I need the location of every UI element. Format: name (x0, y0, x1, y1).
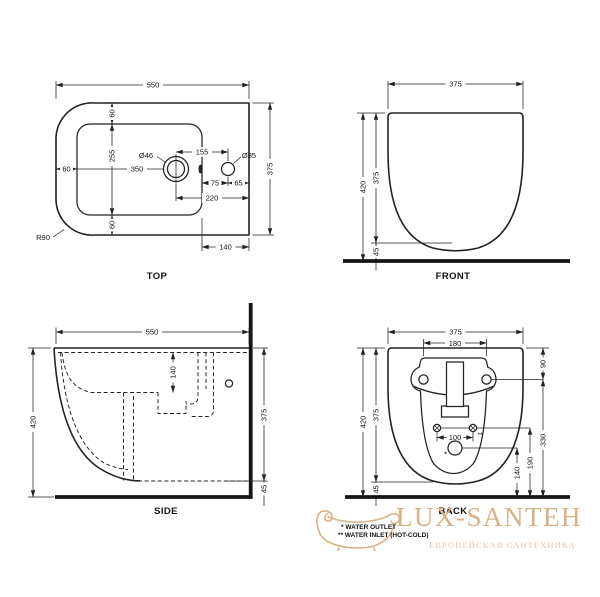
svg-text:375: 375 (449, 328, 462, 337)
svg-text:375: 375 (266, 163, 275, 176)
front-view-label: FRONT (436, 271, 471, 282)
faucet-hole-callout: Ø46 (139, 151, 165, 162)
svg-text:420: 420 (29, 416, 38, 429)
svg-text:45: 45 (372, 485, 381, 493)
svg-text:Ø46: Ø46 (139, 151, 153, 160)
svg-text:255: 255 (108, 150, 117, 163)
svg-text:375: 375 (449, 80, 462, 89)
front-view: 375 420 375 45 (343, 79, 570, 282)
legend-water-inlet: ** WATER INLET (HOT-COLD) (338, 532, 429, 540)
rim-slot (199, 165, 203, 174)
svg-text:45: 45 (372, 248, 381, 256)
svg-text:60: 60 (108, 221, 117, 229)
dim-top-rim-bottom: 60 (107, 215, 117, 235)
legend-water-outlet: * WATER OUTLET (341, 524, 429, 532)
svg-text:330: 330 (539, 434, 548, 447)
mounting-hole-left (419, 375, 428, 384)
side-hidden-interior (58, 353, 247, 481)
dim-top-rim-top: 60 (107, 103, 117, 124)
dim-front-width: 375 (388, 79, 523, 109)
watermark-tagline: ЕВРОПЕЙСКАЯ САНТЕХНИКА (429, 540, 576, 550)
dim-back-body-height: 375 (371, 348, 433, 482)
svg-text:140: 140 (169, 366, 178, 379)
side-view: 550 140 (28, 303, 269, 517)
svg-text:R90: R90 (36, 233, 50, 242)
corner-radius-callout: R90 (36, 230, 64, 243)
side-hole-callout: Ø35 (234, 151, 257, 164)
dim-top-overall-depth: 375 (253, 103, 275, 235)
dim-back-outlet-height: 140 (512, 448, 522, 497)
dim-side-depth: 550 (56, 327, 249, 344)
svg-text:375: 375 (372, 409, 381, 422)
back-view: 375 180 90 (345, 327, 570, 517)
svg-text:420: 420 (359, 416, 368, 429)
svg-text:Ø35: Ø35 (242, 151, 256, 160)
inlet-mark: ** (478, 432, 484, 439)
dim-top-faucet-center: 350 (127, 164, 147, 174)
svg-text:90: 90 (539, 360, 548, 368)
svg-text:180: 180 (449, 339, 462, 348)
svg-text:60: 60 (108, 109, 117, 117)
dim-back-top-to-mount: 90 (492, 348, 550, 380)
dim-side-total-height: 420 (28, 348, 54, 497)
dim-front-floor-gap: 45 (371, 243, 381, 271)
dim-top-side-hole-edge: 65 (228, 178, 249, 188)
top-view-label: TOP (147, 271, 168, 282)
dim-back-inlet-height: 190 (525, 428, 535, 497)
dim-side-basin-depth: 140 (168, 353, 178, 393)
dim-side-body-height: 375 (227, 348, 269, 481)
mounting-hole-right (482, 375, 491, 384)
back-drain-foot (442, 406, 469, 417)
top-view: 550 375 60 255 (36, 80, 275, 282)
svg-text:375: 375 (372, 172, 381, 185)
technical-drawing-canvas: 550 375 60 255 (0, 0, 600, 597)
dim-back-mount-to-floor: 330 (538, 380, 548, 498)
dim-top-faucet-edge: 220 (176, 193, 249, 203)
svg-text:45: 45 (260, 485, 269, 493)
side-front-curve (54, 348, 140, 481)
svg-text:550: 550 (146, 328, 159, 337)
svg-text:350: 350 (131, 165, 144, 174)
back-drain-channel (447, 362, 464, 407)
svg-text:65: 65 (234, 179, 242, 188)
svg-text:550: 550 (147, 81, 160, 90)
side-hole (222, 163, 235, 176)
svg-text:140: 140 (513, 467, 522, 480)
dim-side-floor-gap: 45 (259, 481, 269, 506)
svg-text:75: 75 (211, 179, 219, 188)
svg-text:190: 190 (526, 457, 535, 470)
svg-text:140: 140 (219, 243, 232, 252)
dim-top-inner-depth: 255 (107, 124, 117, 215)
side-inlet-hole (225, 380, 232, 387)
svg-text:60: 60 (62, 165, 70, 174)
side-view-label: SIDE (154, 506, 178, 517)
dim-front-body-height: 375 (371, 113, 452, 243)
legend: * WATER OUTLET ** WATER INLET (HOT-COLD) (338, 524, 429, 540)
svg-text:155: 155 (196, 148, 209, 157)
front-body-outline (388, 113, 523, 251)
svg-text:420: 420 (359, 181, 368, 194)
dim-top-side-hole-offset: 75 (202, 177, 228, 188)
svg-text:220: 220 (206, 194, 219, 203)
outlet-mark: * (444, 451, 447, 460)
svg-text:375: 375 (260, 409, 269, 422)
dim-top-overall-width: 550 (56, 80, 249, 99)
